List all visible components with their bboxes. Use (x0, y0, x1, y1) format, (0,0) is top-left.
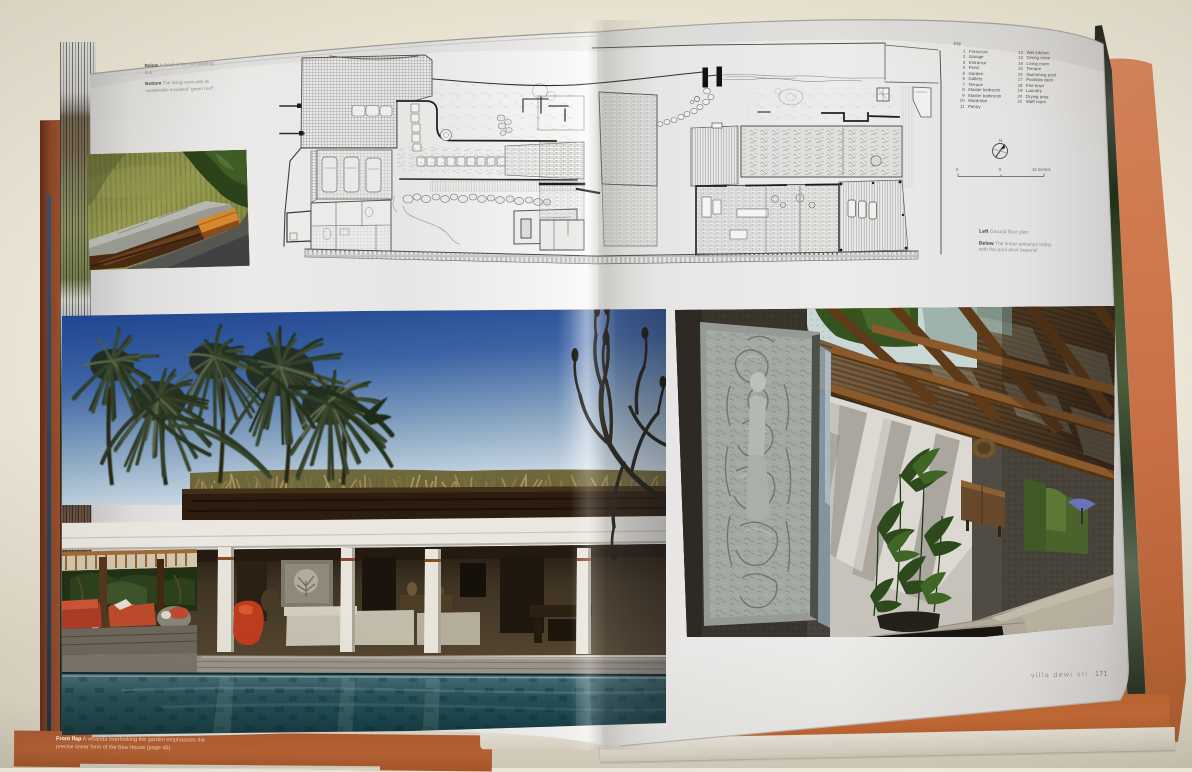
svg-text:0: 0 (956, 167, 959, 172)
svg-text:5: 5 (999, 167, 1002, 172)
svg-text:10 metres: 10 metres (1032, 167, 1051, 172)
svg-text:N: N (999, 138, 1002, 143)
